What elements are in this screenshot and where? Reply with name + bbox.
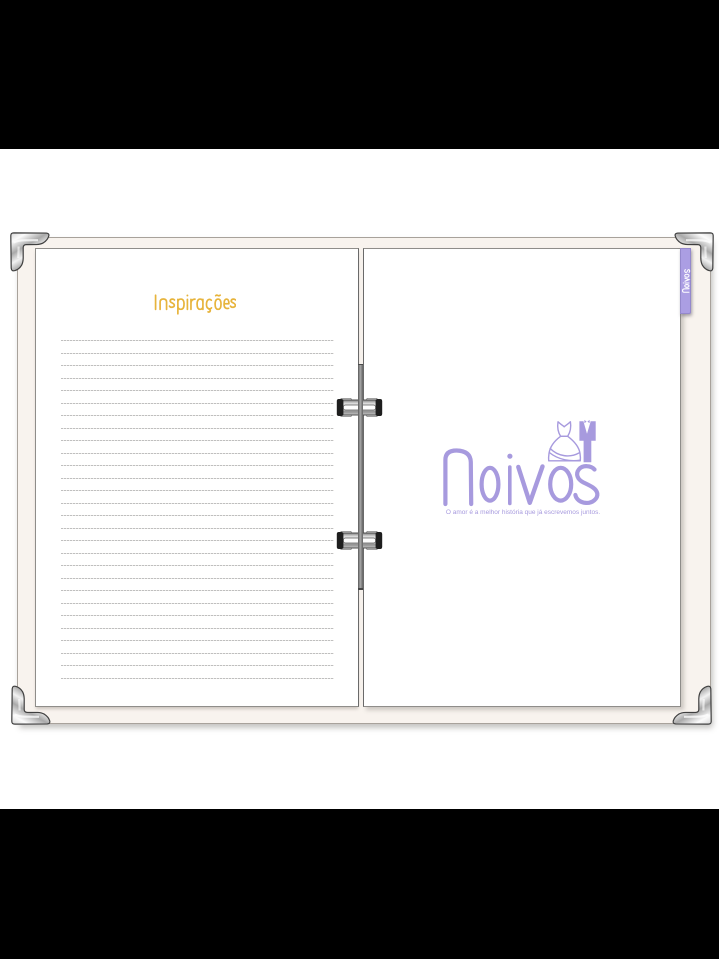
svg-text:O amor é a melhor história que: O amor é a melhor história que já escrev… [446,509,600,516]
